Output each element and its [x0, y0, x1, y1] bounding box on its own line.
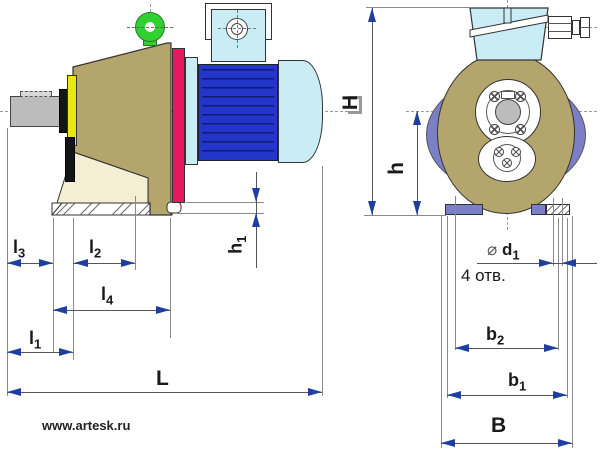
extension-line	[558, 218, 559, 350]
diameter-symbol: ⌀	[487, 240, 497, 259]
motor-end-cap	[278, 60, 323, 163]
dim-line-h	[417, 111, 418, 215]
gland-line	[548, 23, 572, 24]
flange-bolt	[489, 124, 500, 135]
arrow	[455, 344, 469, 352]
gland-nut	[572, 20, 580, 35]
dim-label-b1: b1	[508, 371, 526, 393]
shaft-key	[20, 91, 52, 97]
dim-label-H: H	[340, 95, 361, 110]
dim-line-H	[372, 8, 373, 215]
arrow	[413, 201, 421, 215]
hub-bolt	[502, 158, 512, 168]
flange-bolt	[515, 124, 526, 135]
extension-line	[135, 196, 136, 270]
dim-line-B	[441, 443, 572, 444]
flange-ring-pink	[172, 48, 185, 203]
dim-line-l4	[53, 310, 170, 311]
extension-line	[73, 218, 74, 360]
arrow	[308, 388, 322, 396]
gland-crosshair-v	[237, 10, 238, 48]
extension-line-hole	[553, 198, 554, 266]
arrow	[562, 259, 576, 267]
dim-label-l2: l2	[89, 238, 101, 260]
output-shaft	[10, 96, 62, 127]
flange-bolt	[489, 91, 500, 102]
lower-cover-black	[65, 137, 75, 182]
holes-note: 4 отв.	[461, 267, 506, 284]
dim-line-L	[7, 392, 322, 393]
gearmotor-drawing: l3 l2 l4 l1 L h1 h H ⌀ d1 4 отв. b2 b1 B…	[0, 0, 600, 455]
dim-label-b2: b2	[486, 325, 504, 347]
extension-line	[53, 218, 54, 352]
extension-line-h1-bottom	[176, 213, 264, 214]
extension-line	[170, 218, 171, 338]
dim-label-d1: ⌀ d1	[487, 241, 520, 261]
foot-left	[445, 204, 483, 215]
base-notch	[167, 202, 181, 213]
watermark: www.artesk.ru	[42, 418, 130, 433]
hub-bolt	[511, 147, 521, 157]
bearing-cover-yellow	[67, 75, 77, 146]
arrow	[7, 388, 21, 396]
dim-label-h1: h1	[226, 236, 248, 254]
extension-line	[455, 196, 456, 350]
arrow	[53, 306, 67, 314]
arrow	[539, 259, 553, 267]
extension-line	[441, 216, 442, 448]
dim-label-L: L	[156, 368, 169, 389]
dim-label-l1: l1	[29, 329, 41, 351]
arrow	[121, 259, 135, 267]
gland-line	[548, 31, 572, 32]
extension-line-base-bottom	[364, 215, 446, 216]
arrow	[7, 348, 21, 356]
arrow	[447, 391, 461, 399]
arrow	[39, 259, 53, 267]
foot-right-blue	[531, 204, 546, 215]
motor-adapter	[185, 57, 198, 165]
arrow	[413, 111, 421, 125]
arrow	[252, 188, 260, 202]
foot-right-section	[546, 204, 570, 215]
dim-line-d1	[477, 263, 597, 264]
dim-label-l4: l4	[101, 285, 113, 307]
arrow	[544, 344, 558, 352]
extension-line	[322, 166, 323, 396]
arrow	[368, 201, 376, 215]
extension-line	[447, 216, 448, 398]
arrow	[252, 213, 260, 227]
arrow	[553, 391, 567, 399]
output-shaft-front	[495, 99, 521, 125]
gland-cap-line	[580, 27, 590, 28]
cable-gland-front	[548, 16, 572, 39]
keyway-slot-front	[501, 91, 515, 99]
dim-label-h: h	[386, 162, 407, 175]
eyebolt-crosshair-h	[127, 27, 173, 28]
lid-screw	[504, 8, 511, 23]
dim-line-b1	[447, 395, 567, 396]
arrow	[59, 348, 73, 356]
extension-line	[567, 218, 568, 398]
arrow	[558, 439, 572, 447]
arrow	[156, 306, 170, 314]
hub-bolt	[494, 147, 504, 157]
extension-line-H-top	[366, 7, 470, 8]
arrow	[441, 439, 455, 447]
extension-line	[572, 216, 573, 448]
extension-line-h1-top	[186, 202, 264, 203]
arrow	[74, 259, 88, 267]
extension-line-hole	[562, 198, 563, 266]
motor-cooling-fins	[202, 69, 274, 157]
dim-label-B: B	[491, 415, 506, 436]
dim-label-l3: l3	[13, 238, 25, 260]
arrow	[368, 8, 376, 22]
dim-line-b2	[455, 348, 558, 349]
flange-bolt	[515, 91, 526, 102]
